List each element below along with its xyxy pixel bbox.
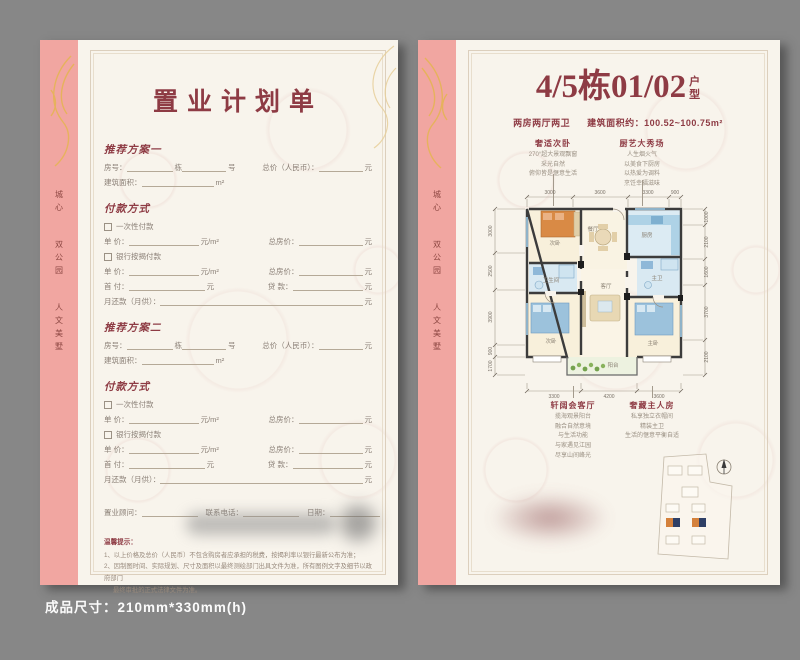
unitprice-row: 单 价： 元/m² 总房价： 元 <box>104 445 372 454</box>
left-page: 城心 双公园 人文美墅 置业计划单 推荐方案一 房号： 栋 号 总价（人民币）：… <box>40 40 398 585</box>
gold-floral-icon <box>41 50 77 180</box>
dim-label: 4200 <box>603 394 614 399</box>
annotation-line: 生活的惬意平衡自适 <box>597 432 707 441</box>
field-label: 建筑面积： <box>104 356 142 365</box>
field-label: 房号： <box>104 341 127 350</box>
dim-label: 2100 <box>704 236 710 247</box>
area-row: 建筑面积： m² <box>104 356 372 365</box>
monthly-row: 月还款（月供）： 元 <box>104 475 372 484</box>
annotation-title: 厨艺大秀场 <box>587 138 697 149</box>
blank-line <box>319 163 363 172</box>
blank-line <box>299 267 363 276</box>
annotation-title: 奢藏主人房 <box>597 400 707 411</box>
page-title: 置业计划单 <box>104 82 372 118</box>
blurred-watermark <box>490 492 610 544</box>
blank-line <box>129 445 199 454</box>
field-label: m² <box>216 356 225 365</box>
field-label: 单 价： <box>104 237 129 246</box>
blank-line <box>127 341 173 350</box>
field-label: 元 <box>365 460 373 469</box>
tip-line: 2、因制图时间、实际规划、尺寸及面积以最终测绘部门出具文件为准，所有图例文字及细… <box>104 561 372 585</box>
room-label: 阳台 <box>607 361 619 369</box>
blank-line <box>299 415 363 424</box>
checkbox-icon <box>104 253 112 261</box>
field-label: 单 价： <box>104 267 129 276</box>
field-label: 元/m² <box>201 415 219 424</box>
annotation-line: 精装主卫 <box>597 423 707 432</box>
dim-label: 3000 <box>544 190 555 196</box>
annotation-line: 以美食下厨房 <box>587 161 697 170</box>
field-label: 总房价： <box>269 415 299 424</box>
tips-title: 温馨提示： <box>104 537 372 550</box>
blank-line <box>293 282 363 291</box>
blank-line <box>142 356 214 365</box>
field-label: 银行按揭付款 <box>116 430 161 439</box>
blank-line <box>129 237 199 246</box>
blank-line <box>129 460 205 469</box>
room-label: 主卫 <box>651 274 663 282</box>
field-label: 元 <box>207 460 215 469</box>
field-label: 首 付： <box>104 282 129 291</box>
field-label: 月还款（月供）： <box>104 475 160 484</box>
site-plan <box>648 452 744 562</box>
mortgage-row: 银行按揭付款 <box>104 252 372 261</box>
field-label: 总房价： <box>269 445 299 454</box>
field-label: 贷 款： <box>268 282 293 291</box>
annotation-master: 奢藏主人房 私享独立衣帽间 精装主卫 生活的惬意平衡自适 <box>597 400 707 442</box>
slogan-part: 人文美墅 <box>432 303 443 355</box>
onetime-row: 一次性付款 <box>104 222 372 231</box>
field-label: 建筑面积： <box>104 178 142 187</box>
slogan-part: 城心 <box>54 190 65 216</box>
field-label: m² <box>216 178 225 187</box>
room-label: 次卧 <box>549 239 561 247</box>
blank-line <box>182 341 226 350</box>
room-label: 主卧 <box>647 339 659 347</box>
unit-subtitle: 两房两厅两卫 建筑面积约：100.52~100.75m² <box>456 116 780 129</box>
plan1-heading: 推荐方案一 <box>104 142 372 157</box>
tip-line: 1、以上价格及总价（人民币）不包含购房者应承担的税费，按揭利率以银行最新公布为准… <box>104 550 372 562</box>
unit-area: 建筑面积约：100.52~100.75m² <box>587 118 723 128</box>
slogan-part: 城心 <box>432 190 443 216</box>
plan2-heading: 推荐方案二 <box>104 320 372 335</box>
blank-line <box>127 163 173 172</box>
field-label: 房号： <box>104 163 127 172</box>
down-loan-row: 首 付： 元 贷 款： 元 <box>104 282 372 291</box>
room-row: 房号： 栋 号 总价（人民币）： 元 <box>104 163 372 172</box>
dim-label: 3600 <box>594 190 605 196</box>
unitprice-row: 单 价： 元/m² 总房价： 元 <box>104 415 372 424</box>
field-label: 号 <box>228 163 236 172</box>
room-label: 厨房 <box>641 231 653 239</box>
vertical-slogan: 城心 双公园 人文美墅 <box>40 190 78 355</box>
unit-rooms: 两房两厅两卫 <box>513 118 570 128</box>
gold-floral-icon <box>419 50 455 180</box>
field-label: 总房价： <box>269 237 299 246</box>
floor-plan: 3000 3600 3300 900 3000 2500 3900 900 17… <box>485 185 715 399</box>
field-label: 单 价： <box>104 415 129 424</box>
field-label: 元 <box>365 341 373 350</box>
room-label: 次卧 <box>545 337 557 345</box>
left-page-content: 置业计划单 推荐方案一 房号： 栋 号 总价（人民币）： 元 建筑面积： m² … <box>78 40 398 585</box>
dim-label: 1000 <box>704 211 710 222</box>
right-page-content: 4/5栋01/02 户 型 两房两厅两卫 建筑面积约：100.52~100.75… <box>456 40 780 585</box>
field-label: 首 付： <box>104 460 129 469</box>
suffix-char: 户 <box>689 76 700 89</box>
field-label: 元 <box>365 163 373 172</box>
dim-label: 900 <box>671 190 680 196</box>
onetime-row: 一次性付款 <box>104 400 372 409</box>
area-row: 建筑面积： m² <box>104 178 372 187</box>
field-label: 元/m² <box>201 445 219 454</box>
blurred-stamp <box>340 505 376 541</box>
field-label: 元 <box>365 237 373 246</box>
field-label: 置业顾问： <box>104 508 142 517</box>
dim-label: 3600 <box>653 394 664 399</box>
field-label: 一次性付款 <box>116 222 154 231</box>
field-label: 月还款（月供）： <box>104 297 160 306</box>
vertical-slogan: 城心 双公园 人文美墅 <box>418 190 456 355</box>
dim-label: 1700 <box>488 360 494 371</box>
unit-title-suffix: 户 型 <box>689 76 700 101</box>
blank-line <box>319 341 363 350</box>
monthly-row: 月还款（月供）： 元 <box>104 297 372 306</box>
unit-title-main: 4/5栋01/02 <box>536 70 686 105</box>
field-label: 元/m² <box>201 267 219 276</box>
unitprice-row: 单 价： 元/m² 总房价： 元 <box>104 237 372 246</box>
leader-line <box>573 386 574 398</box>
field-label: 一次性付款 <box>116 400 154 409</box>
leader-line <box>652 386 653 398</box>
checkbox-icon <box>104 223 112 231</box>
slogan-part: 双公园 <box>432 240 443 279</box>
payment-heading: 付款方式 <box>104 201 372 216</box>
blurred-logo <box>186 513 336 535</box>
room-row: 房号： 栋 号 总价（人民币）： 元 <box>104 341 372 350</box>
field-label: 贷 款： <box>268 460 293 469</box>
mortgage-row: 银行按揭付款 <box>104 430 372 439</box>
annotation-line: 尽享山间峰光 <box>518 452 628 461</box>
down-loan-row: 首 付： 元 贷 款： 元 <box>104 460 372 469</box>
field-label: 栋 <box>175 163 183 172</box>
blank-line <box>299 237 363 246</box>
annotation-line: 与家遇见江园 <box>518 442 628 451</box>
room-label: 卫生间 <box>543 276 560 284</box>
field-label: 银行按揭付款 <box>116 252 161 261</box>
checkbox-icon <box>104 431 112 439</box>
dim-label: 3900 <box>488 311 494 322</box>
field-label: 总房价： <box>269 267 299 276</box>
blank-line <box>160 475 362 484</box>
dim-label: 3300 <box>642 190 653 196</box>
unitprice-row: 单 价： 元/m² 总房价： 元 <box>104 267 372 276</box>
room-label: 餐厅 <box>587 225 599 233</box>
dim-label: 1600 <box>704 266 710 277</box>
blank-line <box>160 297 362 306</box>
field-label: 元 <box>365 475 373 484</box>
dim-label: 2500 <box>488 265 494 276</box>
field-label: 总价（人民币）： <box>262 163 318 172</box>
field-label: 元 <box>365 267 373 276</box>
annotation-line: 私享独立衣帽间 <box>597 413 707 422</box>
field-label: 元/m² <box>201 237 219 246</box>
dim-label: 3300 <box>548 394 559 399</box>
field-label: 号 <box>228 341 236 350</box>
blank-line <box>293 460 363 469</box>
dim-label: 2100 <box>704 351 710 362</box>
blank-line <box>182 163 226 172</box>
left-pink-band: 城心 双公园 人文美墅 <box>40 40 78 585</box>
blank-line <box>129 267 199 276</box>
blank-line <box>129 415 199 424</box>
field-label: 总价（人民币）： <box>262 341 318 350</box>
right-page: 城心 双公园 人文美墅 4/5栋01/02 户 型 两房两厅两卫 建筑面积约：1… <box>418 40 780 585</box>
dim-label: 3700 <box>704 306 710 317</box>
print-size-caption: 成品尺寸：210mm*330mm(h) <box>45 596 247 616</box>
field-label: 元 <box>365 282 373 291</box>
field-label: 单 价： <box>104 445 129 454</box>
unit-title: 4/5栋01/02 户 型 <box>456 70 780 105</box>
suffix-char: 型 <box>689 89 700 102</box>
dim-label: 3000 <box>488 225 494 236</box>
annotation-line: 人生烟火气 <box>587 151 697 160</box>
slogan-part: 双公园 <box>54 240 65 279</box>
field-label: 元 <box>207 282 215 291</box>
field-label: 元 <box>365 297 373 306</box>
annotation-line: 以热爱为调料 <box>587 170 697 179</box>
blank-line <box>299 445 363 454</box>
field-label: 栋 <box>175 341 183 350</box>
room-label: 客厅 <box>600 282 612 290</box>
field-label: 元 <box>365 445 373 454</box>
field-label: 元 <box>365 415 373 424</box>
payment-heading: 付款方式 <box>104 379 372 394</box>
blank-line <box>129 282 205 291</box>
dim-label: 900 <box>488 347 494 356</box>
slogan-part: 人文美墅 <box>54 303 65 355</box>
checkbox-icon <box>104 401 112 409</box>
blank-line <box>142 178 214 187</box>
compass-icon <box>717 459 731 474</box>
right-pink-band: 城心 双公园 人文美墅 <box>418 40 456 585</box>
purchase-form: 置业计划单 推荐方案一 房号： 栋 号 总价（人民币）： 元 建筑面积： m² … <box>78 40 398 585</box>
tips-block: 温馨提示： 1、以上价格及总价（人民币）不包含购房者应承担的税费，按揭利率以银行… <box>104 537 372 597</box>
